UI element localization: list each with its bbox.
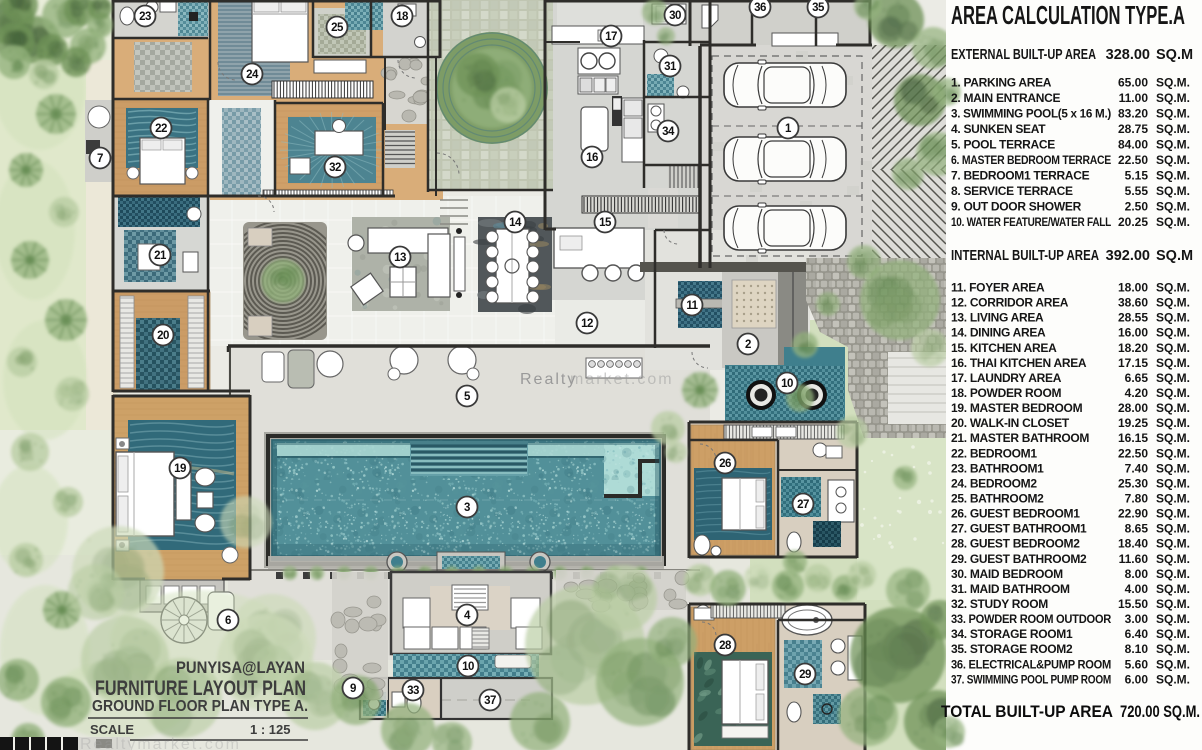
svg-text:SQ.M.: SQ.M. — [1156, 401, 1190, 415]
svg-text:19.25: 19.25 — [1118, 416, 1148, 430]
svg-text:SQ.M.: SQ.M. — [1156, 627, 1190, 641]
svg-text:SQ.M.: SQ.M. — [1156, 672, 1190, 686]
svg-text:SQ.M.: SQ.M. — [1156, 657, 1190, 671]
svg-text:SQ.M.: SQ.M. — [1156, 476, 1190, 490]
svg-text:2. MAIN ENTRANCE: 2. MAIN ENTRANCE — [951, 91, 1061, 105]
svg-text:7: 7 — [97, 153, 103, 165]
svg-text:38.60: 38.60 — [1118, 296, 1148, 310]
svg-text:7. BEDROOM1 TERRACE: 7. BEDROOM1 TERRACE — [951, 169, 1090, 183]
svg-text:6.00: 6.00 — [1125, 672, 1149, 686]
svg-text:13. LIVING AREA: 13. LIVING AREA — [951, 311, 1044, 325]
svg-text:31: 31 — [664, 61, 677, 73]
svg-text:market.com: market.com — [570, 371, 674, 388]
svg-text:16: 16 — [586, 152, 598, 164]
svg-text:SCALE: SCALE — [90, 722, 134, 737]
svg-text:SQ.M.: SQ.M. — [1156, 461, 1190, 475]
svg-text:5.15: 5.15 — [1125, 169, 1149, 183]
svg-text:16.15: 16.15 — [1118, 431, 1148, 445]
svg-text:4. SUNKEN SEAT: 4. SUNKEN SEAT — [951, 122, 1046, 136]
svg-text:28. GUEST BEDROOM2: 28. GUEST BEDROOM2 — [951, 537, 1080, 551]
svg-text:SQ.M.: SQ.M. — [1156, 91, 1190, 105]
svg-text:30: 30 — [669, 10, 681, 22]
svg-text:5. POOL TERRACE: 5. POOL TERRACE — [951, 138, 1055, 152]
svg-text:GROUND FLOOR PLAN TYPE A.: GROUND FLOOR PLAN TYPE A. — [92, 698, 308, 715]
svg-text:22.50: 22.50 — [1118, 153, 1148, 167]
svg-text:3: 3 — [464, 502, 470, 514]
svg-text:SQ.M.: SQ.M. — [1156, 507, 1190, 521]
svg-text:PUNYISA@LAYAN: PUNYISA@LAYAN — [176, 658, 305, 677]
svg-text:6. MASTER BEDROOM TERRACE: 6. MASTER BEDROOM TERRACE — [951, 153, 1111, 167]
svg-text:32. STUDY ROOM: 32. STUDY ROOM — [951, 597, 1048, 611]
svg-text:15: 15 — [599, 217, 612, 229]
svg-text:TOTAL BUILT-UP AREA: TOTAL BUILT-UP AREA — [941, 703, 1113, 721]
svg-text:1 : 125: 1 : 125 — [250, 722, 290, 737]
svg-text:6.65: 6.65 — [1125, 371, 1149, 385]
svg-text:4.20: 4.20 — [1125, 386, 1149, 400]
svg-text:22.90: 22.90 — [1118, 507, 1148, 521]
svg-text:19: 19 — [174, 463, 186, 475]
svg-text:22. BEDROOM1: 22. BEDROOM1 — [951, 446, 1037, 460]
svg-text:14. DINING AREA: 14. DINING AREA — [951, 326, 1046, 340]
svg-text:SQ.M.: SQ.M. — [1156, 416, 1190, 430]
svg-text:10: 10 — [781, 378, 793, 390]
svg-text:SQ.M.: SQ.M. — [1156, 386, 1190, 400]
svg-text:10: 10 — [462, 661, 474, 673]
svg-text:EXTERNAL BUILT-UP AREA: EXTERNAL BUILT-UP AREA — [951, 47, 1096, 63]
svg-text:9. OUT DOOR SHOWER: 9. OUT DOOR SHOWER — [951, 200, 1082, 214]
svg-text:29. GUEST BATHROOM2: 29. GUEST BATHROOM2 — [951, 552, 1087, 566]
svg-text:65.00: 65.00 — [1118, 76, 1148, 90]
svg-text:4.00: 4.00 — [1125, 582, 1149, 596]
svg-text:SQ.M.: SQ.M. — [1156, 153, 1190, 167]
svg-text:11.00: 11.00 — [1119, 91, 1149, 105]
svg-text:SQ.M.: SQ.M. — [1156, 200, 1190, 214]
svg-text:22.50: 22.50 — [1118, 446, 1148, 460]
svg-text:7.80: 7.80 — [1125, 491, 1149, 505]
svg-text:84.00: 84.00 — [1118, 138, 1148, 152]
svg-text:SQ.M.: SQ.M. — [1156, 371, 1190, 385]
svg-text:3.00: 3.00 — [1125, 612, 1149, 626]
svg-text:23: 23 — [139, 11, 151, 23]
svg-text:18. POWDER ROOM: 18. POWDER ROOM — [951, 386, 1061, 400]
svg-text:SQ.M.: SQ.M. — [1156, 107, 1190, 121]
svg-text:SQ.M.: SQ.M. — [1156, 184, 1190, 198]
svg-text:7.40: 7.40 — [1125, 461, 1149, 475]
svg-text:8.10: 8.10 — [1125, 642, 1149, 656]
svg-text:14: 14 — [509, 217, 522, 229]
svg-text:15.50: 15.50 — [1118, 597, 1148, 611]
svg-text:12: 12 — [581, 318, 593, 330]
svg-text:11.60: 11.60 — [1119, 552, 1149, 566]
svg-text:SQ.M.: SQ.M. — [1156, 76, 1190, 90]
svg-text:SQ.M.: SQ.M. — [1156, 491, 1190, 505]
svg-text:8.65: 8.65 — [1125, 522, 1149, 536]
svg-text:SQ.M.: SQ.M. — [1156, 281, 1190, 295]
svg-text:19. MASTER BEDROOM: 19. MASTER BEDROOM — [951, 401, 1083, 415]
svg-text:13: 13 — [394, 252, 406, 264]
svg-text:2.50: 2.50 — [1125, 200, 1149, 214]
svg-text:33: 33 — [407, 685, 419, 697]
svg-text:20.25: 20.25 — [1118, 215, 1148, 229]
svg-text:SQ.M: SQ.M — [1156, 248, 1193, 264]
svg-text:20: 20 — [157, 330, 169, 342]
svg-text:29: 29 — [799, 669, 811, 681]
svg-text:34. STORAGE ROOM1: 34. STORAGE ROOM1 — [951, 627, 1073, 641]
svg-text:31. MAID BATHROOM: 31. MAID BATHROOM — [951, 582, 1070, 596]
svg-text:3. SWIMMING POOL(5 x 16 M.): 3. SWIMMING POOL(5 x 16 M.) — [951, 107, 1111, 121]
svg-text:28.75: 28.75 — [1118, 122, 1148, 136]
svg-text:23. BATHROOM1: 23. BATHROOM1 — [951, 461, 1044, 475]
svg-text:24: 24 — [246, 69, 259, 81]
svg-text:SQ.M.: SQ.M. — [1156, 341, 1190, 355]
svg-text:27. GUEST BATHROOM1: 27. GUEST BATHROOM1 — [951, 522, 1087, 536]
svg-text:8. SERVICE TERRACE: 8. SERVICE TERRACE — [951, 184, 1073, 198]
svg-text:SQ.M.: SQ.M. — [1156, 356, 1190, 370]
svg-text:SQ.M.: SQ.M. — [1156, 597, 1190, 611]
svg-text:21. MASTER BATHROOM: 21. MASTER BATHROOM — [951, 431, 1089, 445]
svg-text:16. THAI KITCHEN AREA: 16. THAI KITCHEN AREA — [951, 356, 1087, 370]
svg-text:24. BEDROOM2: 24. BEDROOM2 — [951, 476, 1037, 490]
svg-text:SQ.M.: SQ.M. — [1156, 522, 1190, 536]
svg-text:SQ.M.: SQ.M. — [1156, 296, 1190, 310]
svg-text:SQ.M.: SQ.M. — [1156, 138, 1190, 152]
svg-text:SQ.M.: SQ.M. — [1156, 612, 1190, 626]
svg-text:16.00: 16.00 — [1118, 326, 1148, 340]
svg-text:20. WALK-IN CLOSET: 20. WALK-IN CLOSET — [951, 416, 1070, 430]
svg-text:30. MAID BEDROOM: 30. MAID BEDROOM — [951, 567, 1063, 581]
svg-text:Realty: Realty — [520, 371, 577, 388]
svg-text:26: 26 — [719, 458, 731, 470]
svg-text:SQ.M: SQ.M — [1156, 47, 1193, 63]
svg-text:25. BATHROOM2: 25. BATHROOM2 — [951, 491, 1044, 505]
svg-text:SQ.M.: SQ.M. — [1156, 567, 1190, 581]
svg-text:11. FOYER AREA: 11. FOYER AREA — [951, 281, 1045, 295]
svg-text:22: 22 — [155, 123, 167, 135]
svg-text:37. SWIMMING POOL PUMP ROOM: 37. SWIMMING POOL PUMP ROOM — [951, 672, 1111, 686]
svg-text:SQ.M.: SQ.M. — [1156, 642, 1190, 656]
svg-text:25: 25 — [331, 22, 344, 34]
svg-text:FURNITURE LAYOUT PLAN: FURNITURE LAYOUT PLAN — [95, 677, 306, 700]
svg-text:1. PARKING AREA: 1. PARKING AREA — [951, 76, 1052, 90]
svg-text:SQ.M.: SQ.M. — [1156, 169, 1190, 183]
svg-text:SQ.M.: SQ.M. — [1156, 582, 1190, 596]
svg-text:32: 32 — [329, 162, 341, 174]
svg-text:328.00: 328.00 — [1106, 47, 1150, 63]
svg-text:15. KITCHEN AREA: 15. KITCHEN AREA — [951, 341, 1057, 355]
svg-text:21: 21 — [154, 250, 167, 262]
svg-text:27: 27 — [797, 499, 809, 511]
svg-text:10. WATER FEATURE/WATER FALL: 10. WATER FEATURE/WATER FALL — [951, 215, 1111, 229]
svg-text:6.40: 6.40 — [1125, 627, 1149, 641]
svg-text:28: 28 — [719, 640, 732, 652]
svg-text:83.20: 83.20 — [1118, 107, 1148, 121]
svg-text:35: 35 — [812, 2, 825, 14]
svg-text:392.00: 392.00 — [1106, 248, 1150, 264]
svg-text:18.40: 18.40 — [1118, 537, 1148, 551]
svg-text:17. LAUNDRY AREA: 17. LAUNDRY AREA — [951, 371, 1062, 385]
svg-text:9: 9 — [350, 683, 356, 695]
svg-text:6: 6 — [225, 615, 231, 627]
svg-text:36. ELECTRICAL&PUMP ROOM: 36. ELECTRICAL&PUMP ROOM — [951, 657, 1111, 671]
svg-text:34: 34 — [662, 126, 675, 138]
svg-text:36: 36 — [754, 2, 766, 14]
svg-text:12. CORRIDOR AREA: 12. CORRIDOR AREA — [951, 296, 1069, 310]
svg-text:33. POWDER ROOM OUTDOOR: 33. POWDER ROOM OUTDOOR — [951, 612, 1112, 626]
svg-text:17: 17 — [605, 31, 617, 43]
svg-text:SQ.M.: SQ.M. — [1156, 552, 1190, 566]
svg-text:8.00: 8.00 — [1125, 567, 1149, 581]
svg-text:26. GUEST BEDROOM1: 26. GUEST BEDROOM1 — [951, 507, 1080, 521]
svg-text:37: 37 — [484, 695, 496, 707]
svg-text:35. STORAGE ROOM2: 35. STORAGE ROOM2 — [951, 642, 1073, 656]
svg-text:28.00: 28.00 — [1118, 401, 1148, 415]
svg-text:18: 18 — [396, 11, 409, 23]
svg-text:Realtymarket.com: Realtymarket.com — [80, 736, 241, 750]
svg-text:5.55: 5.55 — [1125, 184, 1149, 198]
svg-text:SQ.M.: SQ.M. — [1156, 215, 1190, 229]
svg-text:SQ.M.: SQ.M. — [1156, 431, 1190, 445]
svg-text:11: 11 — [686, 300, 698, 312]
svg-text:SQ.M.: SQ.M. — [1156, 326, 1190, 340]
svg-text:SQ.M.: SQ.M. — [1156, 311, 1190, 325]
svg-text:720.00 SQ.M.: 720.00 SQ.M. — [1120, 703, 1200, 721]
svg-text:5.60: 5.60 — [1125, 657, 1149, 671]
svg-text:28.55: 28.55 — [1118, 311, 1148, 325]
svg-text:SQ.M.: SQ.M. — [1156, 446, 1190, 460]
svg-text:INTERNAL BUILT-UP AREA: INTERNAL BUILT-UP AREA — [951, 248, 1099, 264]
svg-text:SQ.M.: SQ.M. — [1156, 537, 1190, 551]
svg-text:AREA CALCULATION TYPE.A: AREA CALCULATION TYPE.A — [951, 0, 1185, 30]
svg-text:18.00: 18.00 — [1118, 281, 1148, 295]
svg-text:18.20: 18.20 — [1118, 341, 1148, 355]
svg-text:25.30: 25.30 — [1118, 476, 1148, 490]
svg-text:2: 2 — [745, 339, 751, 351]
svg-text:SQ.M.: SQ.M. — [1156, 122, 1190, 136]
svg-text:17.15: 17.15 — [1118, 356, 1148, 370]
